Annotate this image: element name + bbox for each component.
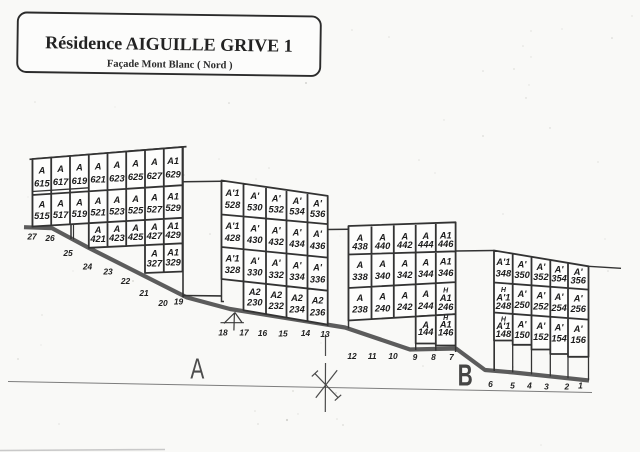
svg-text:519: 519 bbox=[72, 209, 88, 219]
svg-text:A': A' bbox=[312, 229, 323, 239]
svg-text:A: A bbox=[131, 159, 139, 169]
svg-text:10: 10 bbox=[388, 351, 398, 361]
svg-text:A'1: A'1 bbox=[225, 188, 240, 198]
svg-text:621: 621 bbox=[90, 175, 106, 185]
svg-text:530: 530 bbox=[247, 202, 263, 212]
svg-text:338: 338 bbox=[352, 272, 368, 282]
svg-text:13: 13 bbox=[320, 329, 330, 339]
svg-text:527: 527 bbox=[147, 204, 163, 214]
svg-text:9: 9 bbox=[413, 352, 418, 362]
svg-text:A: A bbox=[38, 200, 46, 210]
svg-text:A: A bbox=[150, 157, 158, 167]
svg-text:430: 430 bbox=[246, 235, 263, 245]
svg-text:342: 342 bbox=[397, 270, 413, 280]
svg-text:14: 14 bbox=[301, 328, 311, 338]
svg-text:A: A bbox=[75, 197, 83, 207]
svg-text:427: 427 bbox=[146, 231, 163, 241]
svg-text:446: 446 bbox=[437, 239, 454, 249]
svg-text:A': A' bbox=[249, 223, 260, 233]
svg-text:11: 11 bbox=[368, 351, 377, 361]
svg-text:350: 350 bbox=[514, 270, 530, 280]
svg-text:A': A' bbox=[271, 194, 282, 204]
svg-text:A: A bbox=[400, 290, 408, 300]
svg-text:A': A' bbox=[312, 263, 323, 273]
svg-text:234: 234 bbox=[288, 304, 305, 314]
svg-text:A1: A1 bbox=[166, 156, 179, 166]
svg-text:327: 327 bbox=[147, 259, 163, 269]
svg-text:22: 22 bbox=[120, 276, 131, 286]
svg-text:A2: A2 bbox=[248, 287, 262, 297]
svg-text:152: 152 bbox=[533, 332, 549, 342]
svg-text:623: 623 bbox=[109, 173, 125, 183]
svg-text:444: 444 bbox=[417, 240, 434, 250]
svg-text:438: 438 bbox=[351, 242, 368, 252]
svg-text:4: 4 bbox=[526, 381, 532, 391]
svg-text:A': A' bbox=[554, 322, 565, 332]
svg-text:A': A' bbox=[535, 262, 546, 272]
svg-text:432: 432 bbox=[267, 237, 284, 247]
svg-text:625: 625 bbox=[128, 172, 144, 182]
svg-text:A': A' bbox=[517, 260, 528, 270]
svg-text:A': A' bbox=[292, 260, 303, 270]
svg-text:19: 19 bbox=[174, 297, 184, 307]
svg-text:A: A bbox=[94, 161, 102, 171]
svg-text:517: 517 bbox=[53, 210, 69, 220]
svg-text:344: 344 bbox=[418, 269, 434, 279]
svg-text:5: 5 bbox=[510, 381, 515, 391]
svg-text:252: 252 bbox=[532, 301, 549, 311]
svg-text:238: 238 bbox=[351, 305, 368, 315]
svg-text:A'1: A'1 bbox=[225, 221, 240, 231]
svg-text:A': A' bbox=[535, 291, 546, 301]
svg-text:A': A' bbox=[271, 225, 282, 235]
svg-text:A': A' bbox=[517, 319, 528, 329]
svg-text:429: 429 bbox=[164, 230, 181, 240]
svg-text:18: 18 bbox=[218, 328, 228, 338]
svg-text:23: 23 bbox=[102, 267, 113, 277]
svg-text:250: 250 bbox=[513, 300, 530, 310]
svg-text:236: 236 bbox=[309, 308, 326, 318]
svg-text:A': A' bbox=[517, 289, 528, 299]
svg-text:A: A bbox=[400, 258, 408, 268]
svg-text:617: 617 bbox=[53, 177, 69, 187]
svg-text:525: 525 bbox=[128, 205, 144, 215]
svg-text:1: 1 bbox=[578, 381, 583, 391]
svg-text:340: 340 bbox=[375, 271, 391, 281]
svg-text:A: A bbox=[113, 160, 121, 170]
svg-text:146: 146 bbox=[438, 328, 454, 338]
svg-text:8: 8 bbox=[431, 352, 436, 362]
svg-text:629: 629 bbox=[165, 170, 181, 180]
svg-text:A: A bbox=[131, 194, 139, 204]
svg-text:A: A bbox=[356, 260, 364, 270]
svg-text:A: A bbox=[378, 259, 386, 269]
svg-text:A: A bbox=[56, 199, 64, 209]
svg-text:Façade Mont Blanc ( Nord ): Façade Mont Blanc ( Nord ) bbox=[107, 59, 233, 72]
svg-text:619: 619 bbox=[72, 176, 88, 186]
svg-text:521: 521 bbox=[90, 208, 106, 218]
svg-text:256: 256 bbox=[569, 304, 586, 314]
svg-text:154: 154 bbox=[551, 334, 567, 344]
svg-text:A: A bbox=[113, 195, 121, 205]
svg-text:A': A' bbox=[292, 196, 303, 206]
svg-text:25: 25 bbox=[62, 248, 73, 258]
svg-text:246: 246 bbox=[437, 302, 454, 312]
svg-text:356: 356 bbox=[570, 276, 586, 286]
svg-text:A': A' bbox=[312, 199, 323, 209]
svg-text:24: 24 bbox=[82, 262, 93, 272]
svg-text:534: 534 bbox=[289, 207, 305, 217]
svg-text:A'1: A'1 bbox=[225, 254, 240, 264]
svg-text:330: 330 bbox=[247, 268, 263, 278]
svg-text:A': A' bbox=[271, 258, 282, 268]
svg-text:20: 20 bbox=[157, 298, 168, 308]
svg-text:515: 515 bbox=[34, 211, 50, 221]
svg-text:346: 346 bbox=[438, 268, 454, 278]
svg-text:352: 352 bbox=[533, 272, 549, 282]
svg-text:348: 348 bbox=[496, 268, 512, 278]
svg-text:156: 156 bbox=[570, 335, 586, 345]
svg-text:A2: A2 bbox=[269, 290, 283, 300]
svg-text:6: 6 bbox=[488, 379, 493, 389]
svg-text:244: 244 bbox=[417, 301, 434, 311]
svg-text:334: 334 bbox=[289, 272, 305, 282]
svg-text:A: A bbox=[94, 196, 102, 206]
svg-text:425: 425 bbox=[127, 232, 144, 242]
svg-text:A: A bbox=[190, 353, 204, 385]
svg-text:A': A' bbox=[249, 191, 260, 201]
svg-text:A': A' bbox=[249, 256, 260, 266]
svg-text:A1: A1 bbox=[166, 192, 179, 202]
svg-text:A': A' bbox=[573, 324, 584, 334]
svg-text:354: 354 bbox=[551, 274, 567, 284]
svg-text:528: 528 bbox=[225, 200, 241, 210]
svg-text:615: 615 bbox=[34, 178, 50, 188]
svg-text:A: A bbox=[421, 257, 429, 267]
svg-text:254: 254 bbox=[550, 303, 567, 313]
svg-text:A1: A1 bbox=[166, 248, 179, 258]
svg-text:3: 3 bbox=[544, 382, 549, 392]
svg-text:7: 7 bbox=[449, 352, 454, 362]
svg-text:17: 17 bbox=[239, 328, 249, 338]
svg-text:A'1: A'1 bbox=[495, 257, 510, 267]
svg-text:529: 529 bbox=[165, 203, 181, 213]
svg-text:434: 434 bbox=[288, 239, 305, 249]
svg-text:A': A' bbox=[292, 227, 303, 237]
svg-text:A: A bbox=[150, 248, 158, 258]
svg-text:627: 627 bbox=[147, 171, 163, 181]
svg-text:12: 12 bbox=[347, 351, 357, 361]
svg-text:436: 436 bbox=[309, 241, 326, 251]
svg-text:144: 144 bbox=[418, 327, 434, 337]
svg-text:232: 232 bbox=[267, 301, 284, 311]
svg-text:A': A' bbox=[554, 292, 565, 302]
svg-text:A2: A2 bbox=[290, 293, 304, 303]
svg-text:A': A' bbox=[573, 293, 584, 303]
svg-text:148: 148 bbox=[496, 329, 512, 339]
svg-text:329: 329 bbox=[165, 258, 181, 268]
svg-text:15: 15 bbox=[278, 329, 288, 339]
svg-text:150: 150 bbox=[514, 330, 530, 340]
svg-text:A: A bbox=[378, 292, 386, 302]
svg-text:536: 536 bbox=[310, 209, 326, 219]
svg-text:26: 26 bbox=[44, 233, 55, 243]
svg-text:532: 532 bbox=[268, 205, 284, 215]
svg-text:332: 332 bbox=[268, 270, 284, 280]
svg-text:A2: A2 bbox=[311, 296, 325, 306]
svg-text:A: A bbox=[150, 193, 158, 203]
svg-text:Résidence AIGUILLE GRIVE 1: Résidence AIGUILLE GRIVE 1 bbox=[45, 32, 293, 55]
svg-text:A': A' bbox=[535, 321, 546, 331]
svg-text:2: 2 bbox=[563, 382, 569, 392]
svg-text:423: 423 bbox=[108, 233, 125, 243]
svg-text:A1: A1 bbox=[439, 257, 452, 267]
svg-text:27: 27 bbox=[26, 232, 37, 242]
svg-text:A: A bbox=[75, 163, 83, 173]
svg-text:A: A bbox=[38, 165, 46, 175]
svg-text:328: 328 bbox=[225, 265, 241, 275]
svg-text:248: 248 bbox=[495, 301, 512, 311]
svg-text:16: 16 bbox=[258, 328, 268, 338]
svg-text:523: 523 bbox=[109, 207, 125, 217]
svg-text:A: A bbox=[356, 293, 364, 303]
svg-text:A: A bbox=[421, 289, 429, 299]
svg-text:428: 428 bbox=[224, 233, 241, 243]
svg-text:B: B bbox=[458, 358, 473, 393]
svg-text:336: 336 bbox=[310, 274, 326, 284]
svg-text:A: A bbox=[56, 164, 64, 174]
svg-text:421: 421 bbox=[89, 234, 106, 244]
svg-text:21: 21 bbox=[138, 288, 149, 298]
svg-text:242: 242 bbox=[396, 302, 413, 312]
svg-text:240: 240 bbox=[374, 303, 391, 313]
svg-text:440: 440 bbox=[374, 241, 391, 251]
svg-text:230: 230 bbox=[246, 298, 263, 308]
svg-text:442: 442 bbox=[396, 240, 413, 250]
